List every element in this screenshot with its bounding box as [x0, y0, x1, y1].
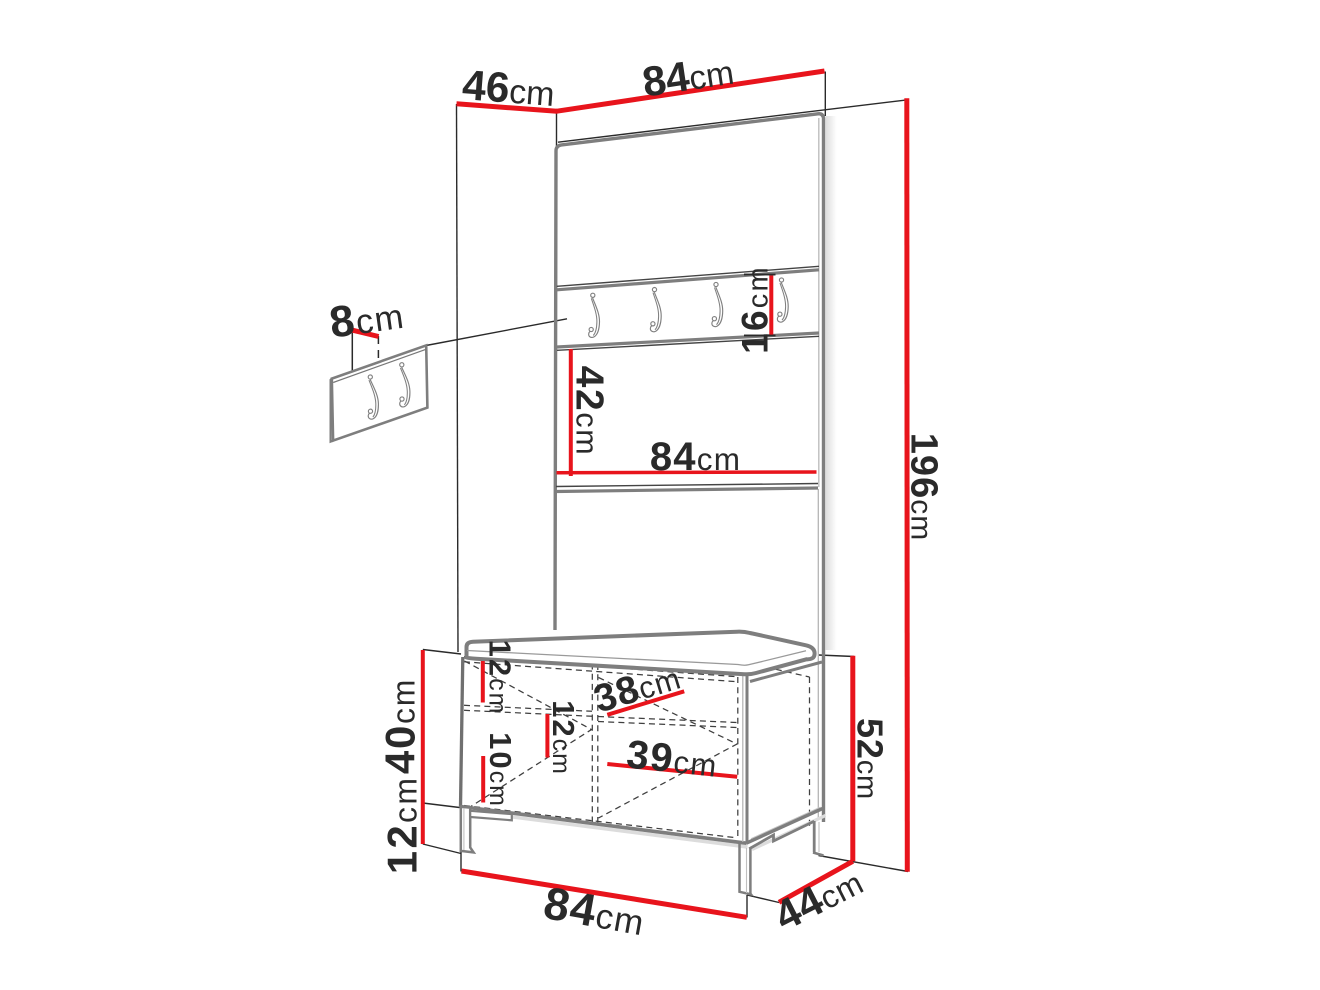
- svg-text:12cm: 12cm: [546, 700, 581, 776]
- svg-text:12cm: 12cm: [483, 640, 518, 716]
- svg-text:84cm: 84cm: [650, 435, 741, 479]
- svg-text:10cm: 10cm: [483, 732, 518, 808]
- svg-text:42cm: 42cm: [568, 366, 611, 457]
- svg-text:196cm: 196cm: [903, 433, 945, 541]
